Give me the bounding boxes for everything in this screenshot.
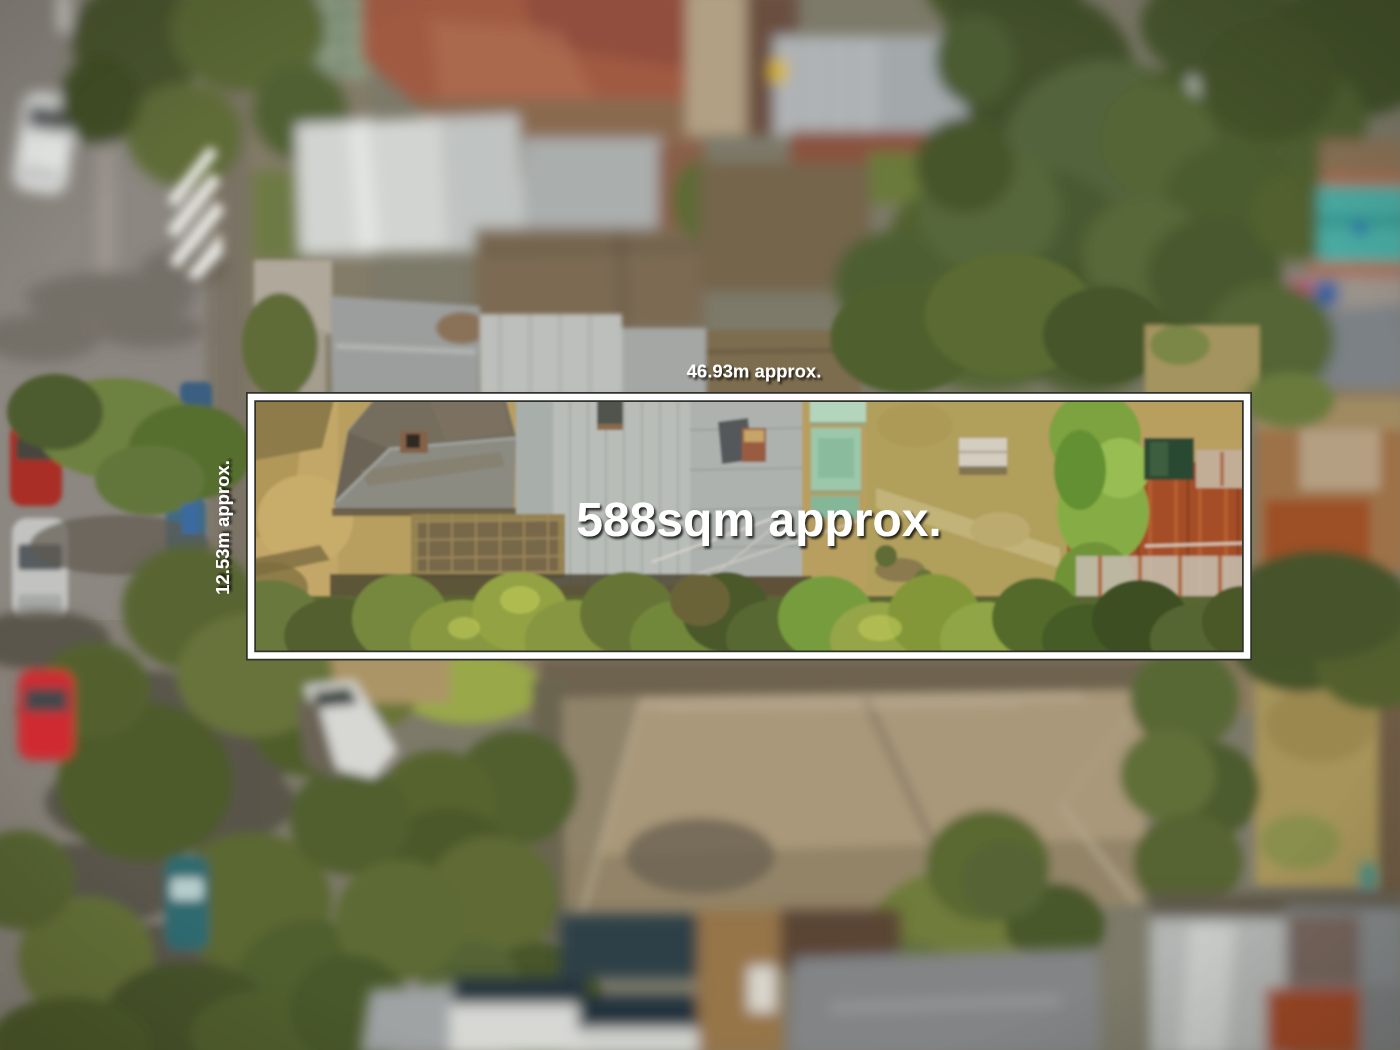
svg-text:46.93m approx.: 46.93m approx. [687,361,822,382]
svg-text:12.53m approx.: 12.53m approx. [212,460,233,595]
svg-text:588sqm approx.: 588sqm approx. [576,494,941,547]
